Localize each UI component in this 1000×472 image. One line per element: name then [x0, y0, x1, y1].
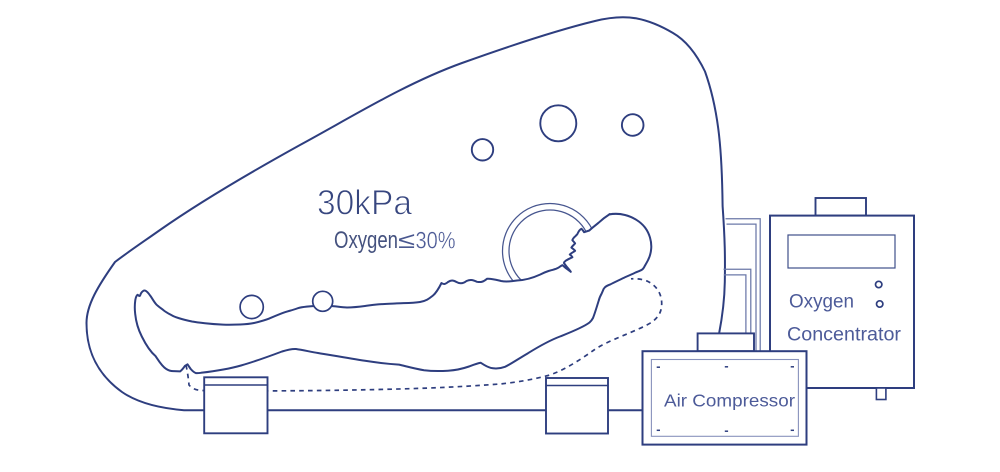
svg-text:≤: ≤	[398, 227, 415, 253]
svg-text:Air Compressor: Air Compressor	[664, 391, 795, 411]
svg-text:Concentrator: Concentrator	[787, 325, 902, 346]
svg-text:Oxygen: Oxygen	[334, 227, 398, 254]
svg-text:Oxygen: Oxygen	[789, 292, 854, 313]
svg-text:30%: 30%	[416, 228, 456, 255]
svg-text:30kPa: 30kPa	[317, 184, 413, 223]
